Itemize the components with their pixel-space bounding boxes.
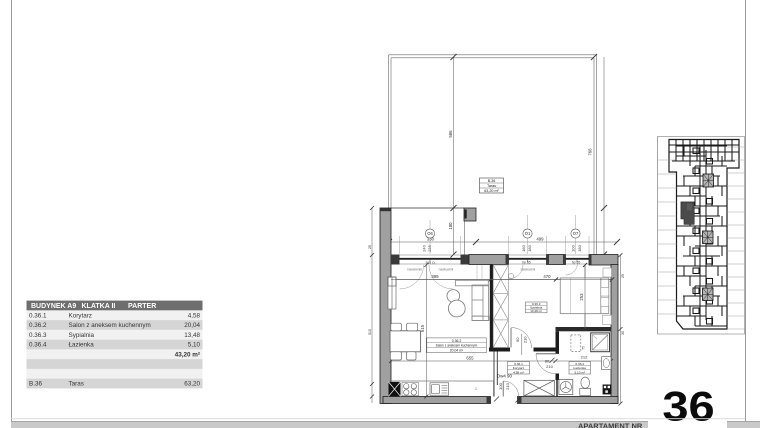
svg-text:Dw4 90: Dw4 90	[497, 374, 512, 379]
svg-text:0.36.3: 0.36.3	[29, 332, 47, 339]
svg-text:212: 212	[581, 354, 588, 359]
svg-text:240: 240	[421, 244, 426, 251]
svg-text:hp 55: hp 55	[522, 261, 531, 265]
svg-text:O1: O1	[525, 231, 531, 236]
svg-text:Sypialnia: Sypialnia	[69, 332, 95, 339]
svg-text:80: 80	[545, 358, 550, 363]
svg-text:180: 180	[577, 244, 582, 251]
svg-text:KLATKA II: KLATKA II	[82, 303, 116, 310]
svg-text:Salon z aneksem kuchennym: Salon z aneksem kuchennym	[69, 322, 151, 329]
svg-text:B.36: B.36	[29, 381, 42, 388]
svg-text:160: 160	[521, 244, 526, 251]
svg-text:nawiewnik: nawiewnik	[407, 268, 422, 272]
svg-text:nawiewnik: nawiewnik	[521, 268, 536, 272]
svg-text:5,10 m²: 5,10 m²	[574, 370, 585, 374]
svg-text:13,48 m²: 13,48 m²	[530, 309, 542, 313]
svg-text:Salon z aneksem kuchennym: Salon z aneksem kuchennym	[436, 344, 478, 348]
svg-text:210: 210	[523, 336, 528, 343]
svg-text:0.36.2: 0.36.2	[29, 322, 47, 329]
svg-text:5,10: 5,10	[188, 342, 201, 349]
svg-text:O7: O7	[573, 231, 579, 236]
svg-text:100: 100	[570, 244, 575, 251]
svg-text:100: 100	[498, 382, 503, 389]
svg-text:210: 210	[505, 382, 510, 389]
svg-text:4,58 m²: 4,58 m²	[513, 370, 524, 374]
svg-text:235: 235	[427, 245, 432, 252]
svg-text:515: 515	[368, 329, 372, 335]
svg-text:36: 36	[662, 384, 714, 428]
svg-text:Korytarz: Korytarz	[69, 313, 92, 320]
svg-text:20,04: 20,04	[184, 322, 200, 329]
svg-text:1: 1	[475, 386, 478, 391]
svg-text:0.36.1: 0.36.1	[29, 313, 47, 320]
svg-text:30: 30	[621, 331, 625, 335]
svg-text:75: 75	[581, 346, 585, 350]
svg-text:4,58: 4,58	[188, 313, 201, 320]
svg-text:360 O,: 360 O,	[425, 261, 435, 265]
svg-text:655: 655	[466, 355, 474, 360]
svg-text:APARTAMENT NR: APARTAMENT NR	[578, 421, 643, 428]
svg-text:hp 55: hp 55	[572, 261, 581, 265]
svg-text:20,04 m²: 20,04 m²	[450, 348, 464, 352]
svg-text:B.36: B.36	[488, 179, 496, 183]
svg-text:63,20: 63,20	[184, 381, 200, 388]
svg-text:PARTER: PARTER	[128, 303, 156, 310]
svg-text:25: 25	[621, 274, 625, 278]
svg-text:586: 586	[448, 130, 453, 138]
svg-text:BUDYNEK A9: BUDYNEK A9	[31, 303, 76, 310]
svg-text:399: 399	[431, 274, 439, 279]
svg-text:210: 210	[546, 364, 553, 369]
svg-text:253: 253	[579, 293, 584, 301]
svg-text:180: 180	[448, 222, 453, 230]
svg-text:13,48: 13,48	[184, 332, 200, 339]
svg-text:499: 499	[536, 236, 544, 241]
svg-text:nawiewnik: nawiewnik	[439, 268, 454, 272]
svg-text:470: 470	[543, 274, 551, 279]
svg-text:O6: O6	[427, 231, 433, 236]
svg-text:766: 766	[588, 148, 593, 156]
svg-text:Taras: Taras	[487, 184, 496, 188]
svg-text:Łazienka: Łazienka	[69, 342, 95, 349]
svg-text:43,20 m²: 43,20 m²	[175, 352, 200, 359]
svg-text:0.36.2: 0.36.2	[452, 339, 462, 343]
svg-text:0.36.4: 0.36.4	[29, 342, 47, 349]
svg-text:Taras: Taras	[69, 381, 84, 388]
svg-text:90: 90	[515, 337, 520, 342]
svg-text:63,20 m²: 63,20 m²	[484, 189, 499, 193]
svg-text:25: 25	[368, 245, 372, 249]
